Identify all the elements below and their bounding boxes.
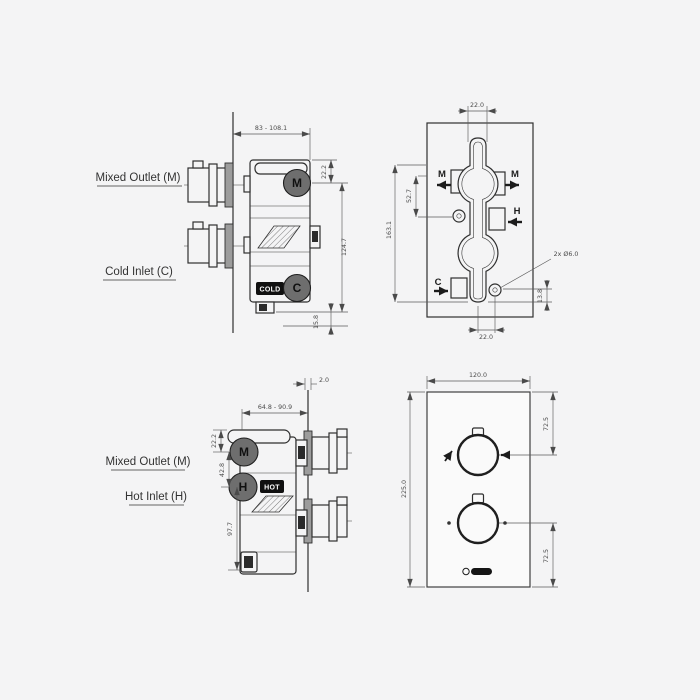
flow-knob [458, 503, 498, 543]
plan-letter-c: C [435, 277, 442, 288]
dim-port-spacing: 124.7 [341, 238, 348, 256]
label-mixed-outlet: Mixed Outlet (M) [96, 172, 181, 184]
dim-port-spacing: 42.8 [219, 463, 226, 477]
view-side-cold: M COLD C 83 - 108.1 22.2 124.7 15.8 Mixe… [96, 112, 349, 335]
dim-bottom-knob-offset: 72.5 [543, 549, 550, 563]
view-plan: M M H C 22.0 163.1 52.7 2x Ø6.0 [386, 102, 578, 341]
drawing-sheet: M COLD C 83 - 108.1 22.2 124.7 15.8 Mixe… [0, 0, 700, 700]
dim-overall-height: 163.1 [386, 221, 393, 239]
label-hot-inlet: Hot Inlet (H) [125, 491, 187, 503]
hot-tag-label: HOT [264, 485, 280, 492]
index-dot [447, 521, 451, 525]
view-side-hot: M H HOT 2.0 64.8 - 90.9 22.2 42.8 97.7 M… [106, 377, 353, 592]
plan-letter-m-left: M [438, 169, 446, 180]
plan-letter-m-right: M [511, 169, 519, 180]
dim-wall-thickness: 2.0 [319, 377, 329, 384]
plan-body-linework [451, 138, 505, 302]
dim-upper-spacing: 52.7 [406, 189, 413, 203]
dim-top-offset: 22.2 [211, 434, 218, 448]
technical-drawing: M COLD C 83 - 108.1 22.2 124.7 15.8 Mixe… [0, 0, 700, 700]
dim-fixing-holes: 2x Ø6.0 [554, 250, 579, 258]
port-letter-h: H [239, 480, 248, 494]
cold-tag-label: COLD [259, 287, 280, 294]
view-faceplate: 120.0 225.0 72.5 72.5 [401, 372, 558, 587]
dim-depth-range: 64.8 - 90.9 [258, 404, 292, 411]
dim-height: 225.0 [401, 480, 408, 498]
temperature-knob [458, 435, 498, 475]
dim-top-offset: 22.2 [321, 165, 328, 179]
dim-hole-offset: 13.8 [537, 289, 544, 303]
port-letter-c: C [293, 281, 302, 295]
dim-stem-width-bottom: 22.0 [479, 334, 493, 341]
label-cold-inlet: Cold Inlet (C) [105, 266, 173, 278]
dim-lower-spacing: 97.7 [227, 522, 234, 536]
dim-width: 120.0 [469, 372, 487, 379]
dim-top-knob-offset: 72.5 [543, 417, 550, 431]
index-dot [503, 521, 507, 525]
port-letter-m: M [292, 176, 302, 190]
port-letter-m: M [239, 445, 249, 459]
dim-depth-range: 83 - 108.1 [255, 125, 287, 132]
faceplate-outline [427, 392, 530, 587]
dim-stem-width-top: 22.0 [470, 102, 484, 109]
dim-bottom-offset: 15.8 [313, 315, 320, 329]
plan-letter-h: H [514, 206, 521, 217]
label-mixed-outlet: Mixed Outlet (M) [106, 456, 191, 468]
